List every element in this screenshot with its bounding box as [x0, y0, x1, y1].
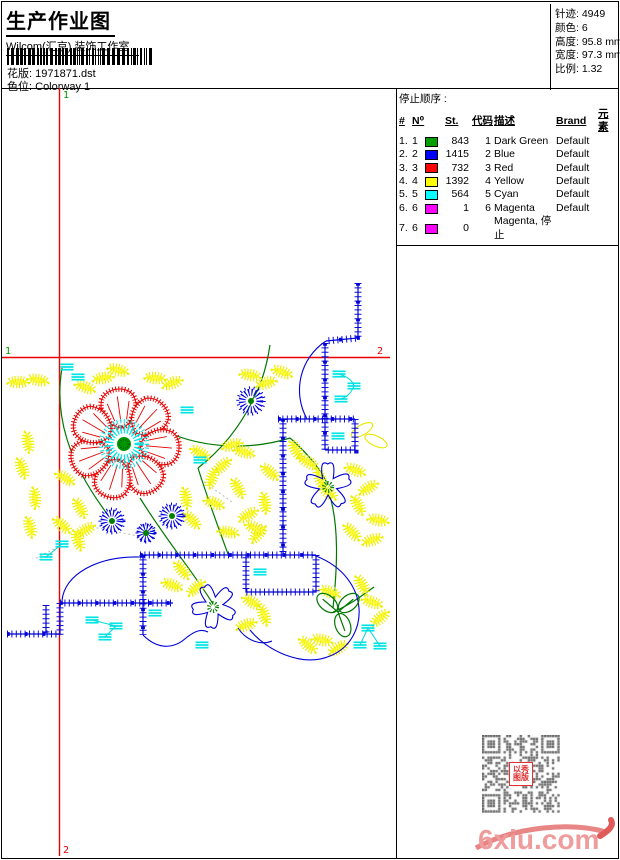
- table-cell: 6: [472, 202, 494, 215]
- table-cell: 6: [412, 202, 425, 215]
- stat-line: 针迹: 4949: [555, 8, 620, 22]
- table-cell: 1: [472, 135, 494, 148]
- watermark-stamp: 以秀 图版: [509, 762, 533, 786]
- color-swatch: [425, 177, 438, 187]
- qr-watermark: 以秀 图版: [482, 735, 560, 813]
- table-cell: 4: [412, 175, 425, 188]
- table-cell: 2.: [399, 148, 412, 161]
- stop-sequence-title: 停止顺序 :: [399, 91, 618, 106]
- table-row: 2.214152BlueDefault: [397, 148, 618, 161]
- table-cell: 2: [472, 148, 494, 161]
- registration-mark: 2: [63, 845, 69, 856]
- site-logo: 6xiu.com: [472, 812, 618, 858]
- page-title: 生产作业图: [6, 5, 115, 37]
- table-cell: 7.: [399, 222, 412, 235]
- table-cell: 1: [445, 202, 472, 215]
- table-header-row: #N⁰St.代码描述Brand元素: [397, 108, 618, 135]
- layer-reg: [2, 88, 390, 856]
- table-cell: Magenta, 停止: [494, 215, 556, 242]
- table-row: 1.18431Dark GreenDefault: [397, 135, 618, 148]
- color-swatch: [425, 204, 438, 214]
- layer-fronds: [9, 365, 389, 656]
- color-swatch-cell: [425, 204, 445, 214]
- color-swatch-cell: [425, 177, 445, 187]
- table-cell: Default: [556, 202, 598, 215]
- color-swatch: [425, 137, 438, 147]
- table-cell: 564: [445, 188, 472, 201]
- design-stats: 针迹: 4949颜色: 6高度: 95.8 mm宽度: 97.3 mm比例: 1…: [550, 4, 620, 90]
- table-cell: 5.: [399, 188, 412, 201]
- table-cell: Default: [556, 162, 598, 175]
- table-row: 4.413924YellowDefault: [397, 175, 618, 188]
- stamp-text-bottom: 图版: [513, 774, 529, 782]
- column-header: 元素: [598, 108, 618, 135]
- table-cell: 1392: [445, 175, 472, 188]
- table-cell: 3: [472, 162, 494, 175]
- table-cell: Blue: [494, 148, 556, 161]
- table-row: 6.616MagentaDefault: [397, 202, 618, 215]
- table-cell: 3.: [399, 162, 412, 175]
- table-cell: 4: [472, 175, 494, 188]
- table-row: 5.55645CyanDefault: [397, 188, 618, 201]
- column-header: 代码: [472, 115, 494, 128]
- table-cell: 6: [412, 222, 425, 235]
- table-cell: 4.: [399, 175, 412, 188]
- table-cell: Cyan: [494, 188, 556, 201]
- registration-mark: 1: [63, 90, 69, 101]
- table-cell: 5: [412, 188, 425, 201]
- logo-text: 6xiu.com: [478, 824, 599, 856]
- table-cell: 732: [445, 162, 472, 175]
- color-swatch: [425, 163, 438, 173]
- table-cell: Red: [494, 162, 556, 175]
- table-cell: Default: [556, 188, 598, 201]
- stat-line: 宽度: 97.3 mm: [555, 49, 620, 63]
- table-cell: 1415: [445, 148, 472, 161]
- table-cell: 0: [445, 222, 472, 235]
- table-cell: Default: [556, 175, 598, 188]
- column-header: #: [399, 115, 412, 128]
- color-swatch: [425, 190, 438, 200]
- layer-red: [66, 387, 180, 502]
- color-swatch-cell: [425, 224, 445, 234]
- barcode: [7, 48, 154, 65]
- table-cell: 843: [445, 135, 472, 148]
- column-header: 描述: [494, 115, 556, 128]
- table-cell: 2: [412, 148, 425, 161]
- table-cell: 6.: [399, 202, 412, 215]
- table-cell: 1.: [399, 135, 412, 148]
- table-cell: Default: [556, 148, 598, 161]
- color-swatch: [425, 224, 438, 234]
- table-row: 7.60Magenta, 停止: [397, 215, 618, 242]
- table-cell: Yellow: [494, 175, 556, 188]
- embroidery-design-preview: 1212: [2, 88, 396, 856]
- column-header: Brand: [556, 115, 598, 128]
- color-swatch-cell: [425, 190, 445, 200]
- table-row: 3.37323RedDefault: [397, 162, 618, 175]
- color-swatch: [425, 150, 438, 160]
- table-cell: Dark Green: [494, 135, 556, 148]
- stat-line: 颜色: 6: [555, 22, 620, 36]
- column-header: N⁰: [412, 115, 425, 128]
- color-swatch-cell: [425, 163, 445, 173]
- registration-mark: 1: [5, 346, 11, 357]
- table-cell: 3: [412, 162, 425, 175]
- stat-line: 高度: 95.8 mm: [555, 36, 620, 50]
- color-swatch-cell: [425, 150, 445, 160]
- column-header: St.: [445, 115, 472, 128]
- table-cell: 5: [472, 188, 494, 201]
- table-cell: 1: [412, 135, 425, 148]
- stop-sequence-table: #N⁰St.代码描述Brand元素1.18431Dark GreenDefaul…: [397, 108, 618, 246]
- header: 生产作业图 Wilcom(汇京) 装饰工作室 花版: 1971871.dst 色…: [2, 2, 618, 89]
- table-cell: Magenta: [494, 202, 556, 215]
- registration-mark: 2: [377, 346, 383, 357]
- color-swatch-cell: [425, 137, 445, 147]
- production-worksheet: 生产作业图 Wilcom(汇京) 装饰工作室 花版: 1971871.dst 色…: [0, 0, 620, 860]
- stat-line: 比例: 1.32: [555, 63, 620, 77]
- table-cell: Default: [556, 135, 598, 148]
